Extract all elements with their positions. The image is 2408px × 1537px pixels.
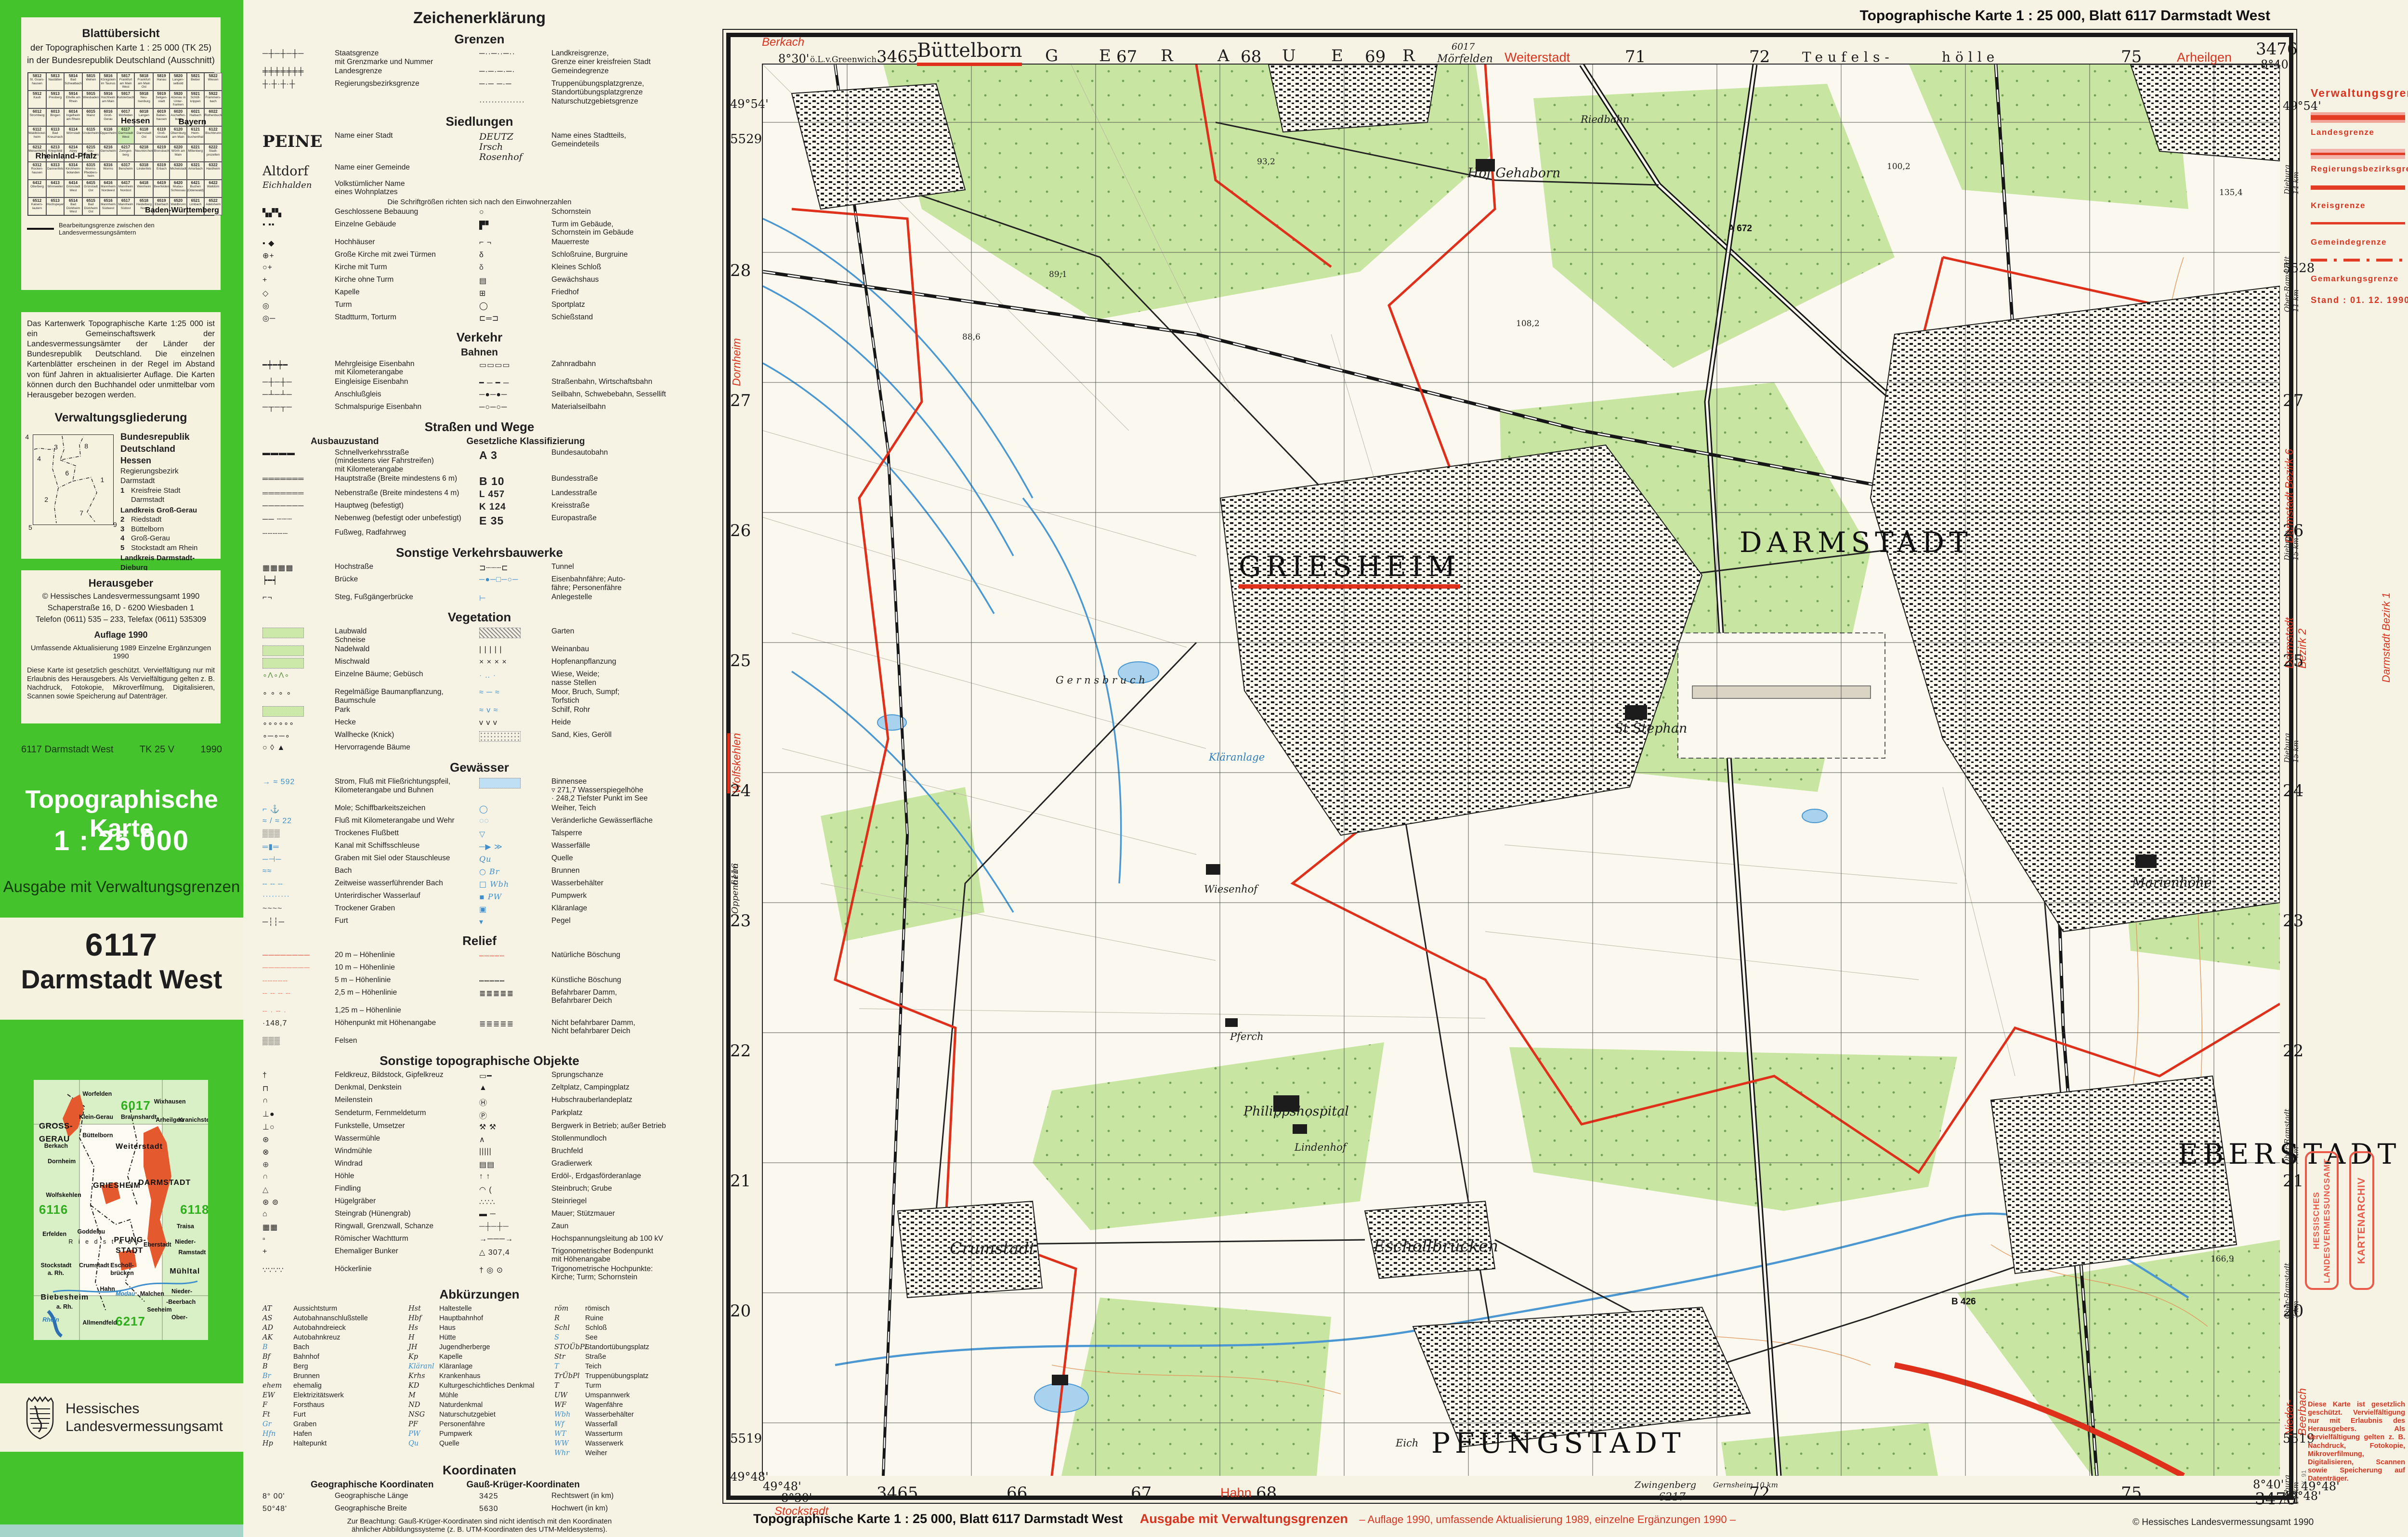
margin-label: 66 (1007, 1484, 1027, 1503)
legend-column-headers: AusbauzustandGesetzliche Klassifizierung (262, 436, 696, 447)
abbreviation-row: QuQuelle (408, 1439, 550, 1448)
stand-date: Stand : 01. 12. 1990 (2311, 295, 2405, 305)
legend-row: ⌐ ⚓Mole; Schiffbarkeitszeichen◯Weiher, T… (262, 803, 696, 816)
sheet-index-cell: 6121Heim-buchenthal (187, 126, 204, 144)
verwaltung-title: Verwaltungsgliederung (27, 411, 215, 425)
legend-row: ─⊣─Graben mit Siel oder StauschleuseQuQu… (262, 854, 696, 866)
legend-row: Mischwald× × × ×Hopfenanpflanzung (262, 657, 696, 670)
abbreviation-row: KDKulturgeschichtliches Denkmal (408, 1381, 550, 1391)
map-place-label: Lindenhof (1295, 1142, 1347, 1153)
margin-label: 49°54' (730, 97, 769, 111)
margin-label: 72 (1749, 47, 1770, 66)
minimap-number: 6 (65, 469, 69, 477)
update-line: Umfassende Aktualisierung 1989 Einzelne … (27, 644, 215, 660)
cover-panel: Blattübersicht der Topographischen Karte… (0, 0, 243, 1537)
sheet-index-cell: 6116Oppenheim (100, 126, 117, 144)
sheet-index-cell: 6318Lindenfels (134, 162, 153, 180)
locator-label: PFUNG- (114, 1236, 146, 1245)
legend-row: †Feldkreuz, Bildstock, Gipfelkreuz▭━Spru… (262, 1070, 696, 1083)
sheet-index-cell: 5912Kaub (28, 91, 46, 108)
sheet-index-cell: 5822Wiesen (204, 73, 222, 91)
sheet-index-cell: 6221Miltenberg (187, 144, 204, 162)
sheet-index-cell: 6416Mannheim Nordwest (100, 180, 117, 197)
sheet-index-cell: 6514Bad Dürkheim West (64, 197, 82, 215)
admin-group: Landkreis Darmstadt-Dieburg (120, 553, 215, 572)
sheet-index-cell: 6516Mannheim Südwest (100, 197, 117, 215)
locator-label: 6217 (116, 1314, 145, 1329)
legend-row: ╌ · ╌ ·1,25 m – Höhenlinie (262, 1006, 696, 1018)
margin-label: 8°30' (781, 1491, 812, 1505)
sheet-index-cell: 6014Ingelheim am Rhein (64, 108, 82, 126)
print-mark: X. 91 (2300, 1470, 2307, 1484)
locator-label: Wixhausen (154, 1098, 186, 1105)
locator-label: DARMSTADT (138, 1179, 191, 1187)
blattuebersicht-card: Blattübersicht der Topographischen Karte… (21, 17, 221, 290)
legend-row: +Kirche ohne Turm▤Gewächshaus (262, 275, 696, 288)
legend-row: ⊛Wassermühle∧Stollenmundloch (262, 1134, 696, 1146)
sheet-index-cell: 6317Bensheim (117, 162, 135, 180)
sheet-index-cell: 6419Beerfelden (153, 180, 170, 197)
locator-label: a. Rh. (48, 1270, 64, 1276)
admin-item: 3Büttelborn (120, 525, 215, 534)
legend-row: ╌ ╌ ╌ ╌2,5 m – Höhenlinie≣≣≣≣≣Befahrbare… (262, 988, 696, 1006)
legend-section-heading: Sonstige topographische Objekte (262, 1053, 696, 1068)
legend-row: ≈ / ≈ 22Fluß mit Kilometerangabe und Weh… (262, 816, 696, 828)
abbreviation-row: TTurm (554, 1381, 696, 1391)
margin-label: 71 (1625, 47, 1646, 66)
abbreviation-row: MMühle (408, 1391, 550, 1400)
sheet-index-cell: 6216Gernsheim (100, 144, 117, 162)
kartenwerk-text: Das Kartenwerk Topographische Karte 1:25… (27, 319, 215, 400)
margin-label: 25 (2283, 651, 2303, 670)
admin-item: 5Stockstadt am Rhein (120, 543, 215, 553)
margin-label: G (1045, 46, 1059, 66)
margin-label: 5528 (2283, 261, 2315, 276)
legend-row: ⊥○Funkstelle, Umsetzer⚒ ⚒Bergwerk in Bet… (262, 1121, 696, 1134)
margin-label: Zwingenberg (1635, 1480, 1696, 1490)
abbreviation-row: KrhsKrankenhaus (408, 1371, 550, 1381)
margin-label: 20 (2283, 1301, 2303, 1321)
margin-label: Weiterstadt (1505, 50, 1570, 65)
hessen-coat-of-arms (25, 1395, 55, 1440)
sheet-index-cell: 6218Neunkirchen (134, 144, 153, 162)
bezirk-label: Darmstadt Bezirk 1 (2380, 592, 2393, 683)
map-place-label: G e r n s b r u c h (1056, 674, 1145, 686)
herausgeber-card: Herausgeber © Hessisches Landesvermessun… (21, 570, 221, 723)
locator-label: Wolfskehlen (46, 1192, 81, 1198)
legend-row: ─┆┆─Furt▾Pegel (262, 916, 696, 929)
legend-example-row: PEINEName einer StadtDEUTZ Irsch Rosenho… (262, 131, 696, 163)
sheet-index-cell: 6312Rocken-hausen (28, 162, 46, 180)
margin-label: 21 (2283, 1171, 2303, 1191)
legend-row: ∘Λ∘Λ∘Einzelne Bäume; Gebüsch· ‥ ·Wiese, … (262, 670, 696, 687)
legend-row: ────────10 m – Höhenlinie (262, 963, 696, 975)
margin-label: 49°48' (2283, 1489, 2321, 1503)
sheet-index-cell: 6412Otterberg (28, 180, 46, 197)
abbreviation-row: KpKapelle (408, 1352, 550, 1362)
legend-section-heading: Gewässer (262, 760, 696, 775)
margin-label: Ober-Ramstadt 7 km (2283, 1109, 2300, 1165)
locator-label: Braunshardt (121, 1114, 157, 1120)
meta-sheet: 6117 Darmstadt West (21, 744, 114, 755)
sheet-index-cell: 6422Walldürn (204, 180, 222, 197)
sheet-index-cell: 6219Brensbach (153, 144, 170, 162)
sheet-index-cell: 5913Presberg (46, 91, 64, 108)
locator-label: -Beerbach (166, 1299, 196, 1305)
minimap-number: 4 (25, 433, 29, 441)
margin-label: Nieder- Beerbach (2283, 1388, 2309, 1435)
sheet-number: 6117 (0, 926, 243, 963)
admin-legend-title: Verwaltungsgrenzen (2311, 87, 2405, 100)
legend-row: ···············Naturschutzgebietsgrenze (262, 97, 696, 109)
legend-row: ⊕Windrad▤▤Gradierwerk (262, 1159, 696, 1171)
legend-row: ─┬─┬─Schmalspurige Eisenbahn─○─○─Materia… (262, 402, 696, 415)
footer-edition: Ausgabe mit Verwaltungsgrenzen (1140, 1511, 1348, 1526)
sheet-index-cell: 6122Bischbrunn (204, 126, 222, 144)
legend-section-heading: Sonstige Verkehrsbauwerke (262, 545, 696, 560)
sheet-index-cell: 6013Bingen (46, 108, 64, 126)
kartenwerk-card: Das Kartenwerk Topographische Karte 1:25… (21, 312, 221, 559)
legend-row: ▚▞▚Geschlossene Bebauung○Schornstein (262, 207, 696, 220)
map-place-label: Wiesenhof (1204, 883, 1257, 895)
sheet-index-cell: 6414Grünstadt West (64, 180, 82, 197)
abbreviation-row: HbfHauptbahnhof (408, 1314, 550, 1323)
legend-row: ⊛ ⊚Hügelgräber∴∵∴Steinriegel (262, 1196, 696, 1209)
legend-row: ◎Turm◯Sportplatz (262, 300, 696, 313)
legend-row: ─┼─┼─Eingleisige Eisenbahn━ ─ ━ ─Straßen… (262, 377, 696, 390)
abbreviation-row: WFWagenfähre (554, 1400, 696, 1410)
abbreviation-row: BBach (262, 1342, 405, 1352)
legend-row: ╌ ╌ ╌Zeitweise wasserführender Bach□ Wbh… (262, 879, 696, 891)
minimap-number: 1 (100, 476, 104, 484)
sheet-footer: Topographische Karte 1 : 25 000, Blatt 6… (753, 1511, 1736, 1526)
abbreviation-row: RRuine (554, 1314, 696, 1323)
legend-row: ─┴─┴─Anschlußgleis─●─●─Seilbahn, Schwebe… (262, 390, 696, 402)
sheet-index-cell: 6420Mudau-Schlossau (170, 180, 186, 197)
margin-label: 6017 (1452, 41, 1475, 52)
map-frame: GRIESHEIMDARMSTADTEBERSTADTPFUNGSTADTSt … (722, 29, 2297, 1504)
legend-section-heading: Koordinaten (262, 1463, 696, 1478)
legend-row: ∘─∘─∘Wallhecke (Knick)Sand, Kies, Geröll (262, 730, 696, 743)
margin-label: 22 (2283, 1041, 2303, 1061)
legend-row: 8° 00'Geographische Länge3425Rechtswert … (262, 1491, 696, 1504)
sheet-index-cell: 6113Bad Kreuznach (46, 126, 64, 144)
region-label: Baden-Württemberg (145, 206, 219, 215)
legend-row: ∵∵∵∵Höckerlinie† ◎ ⊙Trigonometrische Hoc… (262, 1264, 696, 1282)
locator-label: a. Rh. (56, 1303, 73, 1310)
sheet-index-cell: 5813Nastätten (46, 73, 64, 91)
publisher-line1: © Hessisches Landesvermessungsamt 1990 (27, 592, 215, 601)
locator-label: Modau (116, 1290, 135, 1297)
margin-label: 8°40' (2261, 58, 2291, 71)
legend-row: ·148,7Höhenpunkt mit Höhenangabe≣≣≣≣≣Nic… (262, 1018, 696, 1036)
map-place-label: 88,6 (962, 332, 981, 342)
sheet-index-cell: 5815Wehen (82, 73, 100, 91)
map-place-label: A 672 (1728, 223, 1752, 234)
legend-row: ───────Hauptweg (befestigt)K 124Kreisstr… (262, 501, 696, 513)
margin-label: Teufels- (1802, 49, 1894, 65)
map-place-label: Marienhöhe (2132, 875, 2212, 890)
locator-label: Ober- (171, 1314, 187, 1321)
margin-label: 6217 (1659, 1491, 1686, 1503)
margin-label: E (1331, 46, 1344, 66)
locator-label: Nieder- (171, 1288, 192, 1295)
sheet-index-cell: 6222Stadt-prozelten (204, 144, 222, 162)
abbreviation-row: StrStraße (554, 1352, 696, 1362)
admin-state: Hessen (120, 455, 215, 466)
abbreviation-row: HHütte (408, 1333, 550, 1342)
locator-label: Hahn (100, 1286, 115, 1292)
map-place-label: Eschollbrücken (1374, 1236, 1498, 1255)
sheet-header: Topographische Karte 1 : 25 000, Blatt 6… (1859, 8, 2270, 24)
abbreviation-row: PFPersonenfähre (408, 1419, 550, 1429)
legend-row: ▪ ▪▪Einzelne Gebäude▛▘Turm im Gebäude, S… (262, 220, 696, 237)
margin-label: hölle (1942, 49, 1999, 65)
locator-map: GROSS-GERAUWorfelden6017WixhausenKlein-G… (34, 1080, 208, 1340)
locator-label: Klein-Gerau (79, 1114, 113, 1120)
map-place-label: Philippshospital (1243, 1104, 1349, 1119)
sheet-index-cell: 6117Darmstadt West (117, 126, 135, 144)
abbreviation-row: GrGraben (262, 1419, 405, 1429)
legend-row: ⌐¬Steg, Fußgängerbrücke⊢Anlegestelle (262, 592, 696, 605)
sheet-index-cell: 6417Mannheim Nordost (117, 180, 135, 197)
legal-text: Diese Karte ist gesetzlich geschützt. Ve… (27, 666, 215, 701)
minimap-number: 2 (44, 496, 48, 503)
abbreviation-row: KläranlKläranlage (408, 1362, 550, 1371)
legend-row: ┄┄┄┄┄Fußweg, Radfahrweg (262, 528, 696, 540)
margin-label: 75 (2121, 47, 2142, 66)
sheet-index-cell: 5919Seligen-stadt (153, 91, 170, 108)
abbreviation-row: HpHaltepunkt (262, 1439, 405, 1448)
locator-label: Büttelborn (82, 1132, 113, 1139)
locator-label: 6017 (121, 1098, 151, 1113)
locator-label: Ramstadt (178, 1249, 206, 1256)
margin-label: R (1402, 46, 1416, 66)
sheet-index-cell: 6313Dannenfels (46, 162, 64, 180)
sheet-index-cell: 6320Michelstadt (170, 162, 186, 180)
boundary-line-sample (27, 228, 54, 230)
abbreviation-row: SchlSchloß (554, 1323, 696, 1333)
legend-row: △Findling◠ (Steinbruch; Grube (262, 1184, 696, 1196)
blattuebersicht-subtitle1: der Topographischen Karte 1 : 25 000 (TK… (27, 42, 215, 53)
sheet-index-cell: 6321Amorbach (187, 162, 204, 180)
minimap-number: 3 (54, 443, 58, 451)
district-minimap: 4384612759 (33, 434, 114, 525)
minimap-number: 4 (37, 455, 41, 462)
margin-label: E (1099, 46, 1112, 66)
region-label: Bayern (179, 117, 207, 127)
sheet-index-cell: 5818Frankfurt am Main Ost (134, 73, 153, 91)
margin-label: 26 (2283, 521, 2303, 540)
locator-label: Escholl- (110, 1262, 134, 1269)
locator-label: Eberstadt (144, 1241, 171, 1248)
map-place-label: Hof Gehaborn (1467, 166, 1560, 181)
map-place-label: B 426 (1951, 1297, 1976, 1307)
sheet-index-cell: 5816Königstein im Taunus (100, 73, 117, 91)
sheet-index-cell: 6415Grünstadt Ost (82, 180, 100, 197)
sheet-index-cell: 5820Langen-selbold (170, 73, 186, 91)
sheet-index-cell: 5819Hanau (153, 73, 170, 91)
legend-section-heading: Abkürzungen (262, 1287, 696, 1302)
locator-label: Stockstadt (40, 1262, 71, 1269)
legend-row: ▫Römischer Wachtturm→───→Hochspannungsle… (262, 1234, 696, 1247)
legend-body: Grenzen─┼─┼─┼─Staatsgrenze mit Grenzmark… (262, 32, 696, 1537)
publisher-band: Hessisches Landesvermessungsamt (0, 1383, 243, 1452)
abbreviation-row: EWElektrizitätswerk (262, 1391, 405, 1400)
legend-row: ── ┄┄┄Nebenweg (befestigt oder unbefesti… (262, 513, 696, 528)
abbreviation-row: WfWasserfall (554, 1419, 696, 1429)
legend-row: ▪ ◆Hochhäuser⌐ ¬Mauerreste (262, 237, 696, 250)
legend-column-headers: Geographische KoordinatenGauß-Krüger-Koo… (262, 1480, 696, 1490)
abbreviation-row: PWPumpwerk (408, 1429, 550, 1439)
locator-label: Mühltal (170, 1267, 200, 1276)
boundary-legend-item: Gemeindegrenze (2311, 222, 2405, 247)
locator-label: Crumstadt (79, 1262, 109, 1269)
abbreviation-row: WTWasserturm (554, 1429, 696, 1439)
sheet-index-cell: 6322Hardheim (204, 162, 222, 180)
minimap-number: 9 (113, 521, 117, 528)
minimap-number: 5 (28, 524, 32, 531)
footer-title: Topographische Karte 1 : 25 000, Blatt 6… (753, 1511, 1123, 1526)
legend-row: ═══════Nebenstraße (Breite mindestens 4 … (262, 488, 696, 501)
locator-label: Seeheim (147, 1306, 171, 1313)
sheet-index-cell: 5920Alzenau in Unter-franken (170, 91, 186, 108)
abbreviation-row: HfnHafen (262, 1429, 405, 1439)
cover-scale: 1 : 25 000 (0, 825, 243, 857)
legend-row: +Ehemaliger Bunker△ 307,4Trigonometrisch… (262, 1247, 696, 1264)
blattuebersicht-title: Blattübersicht (27, 27, 215, 40)
margin-label: 26 (730, 521, 751, 540)
map-place-label: PFUNGSTADT (1431, 1427, 1686, 1459)
legend-row: ╌╌╌╌╌5 m – Höhenlinie┉┉┉┉┉Künstliche Bös… (262, 975, 696, 988)
admin-district: Regierungsbezirk Darmstadt (120, 467, 215, 486)
margin-label: A (1217, 46, 1230, 66)
locator-label: Erfelden (42, 1231, 66, 1237)
abbreviation-row: TTeich (554, 1362, 696, 1371)
locator-label: Dornheim (48, 1158, 76, 1165)
legend-panel: Zeichenerklärung Grenzen─┼─┼─┼─Staatsgre… (243, 0, 713, 1537)
sheet-index-cell: 6314Kirchheim-bolanden (64, 162, 82, 180)
margin-label: 21 (730, 1171, 751, 1191)
meta-series: TK 25 V (140, 744, 174, 755)
abbreviation-row: UWUmspannwerk (554, 1391, 696, 1400)
legend-row: ○+Kirche mit TurmδKleines Schloß (262, 263, 696, 275)
sheet-number-band: 6117 Darmstadt West (0, 918, 243, 1020)
locator-label: STADT (116, 1247, 143, 1255)
blatt-caption: Bearbeitungsgrenze zwischen den Landesve… (27, 222, 215, 236)
sheet-index-cell: 5814Bad Schwalbach (64, 73, 82, 91)
boundary-legend-item: Kreisgrenze (2311, 185, 2405, 210)
map-place-label: 89,1 (1049, 270, 1067, 279)
sheet-index-cell: 5812St. Goars-hausen (28, 73, 46, 91)
map-place-label: 135,4 (2219, 188, 2243, 197)
locator-label: Malchen (140, 1290, 164, 1297)
admin-country: Bundesrepublik Deutschland (120, 432, 215, 455)
legend-row: ⊓Denkmal, Denkstein▲Zeltplatz, Campingpl… (262, 1083, 696, 1095)
margin-label: 20 (730, 1301, 751, 1321)
map-place-label: Crumstadt (950, 1239, 1035, 1258)
locator-label: Biebesheim (40, 1293, 89, 1302)
boundary-legend-item: Gemarkungsgrenze (2311, 259, 2405, 284)
map-canvas (762, 64, 2279, 1475)
abbreviation-row: AKAutobahnkreuz (262, 1333, 405, 1342)
map-sheet: Topographische Karte 1 : 25 000, Blatt 6… (713, 0, 2408, 1537)
map-place-label: Eich (1396, 1437, 1418, 1449)
abbreviation-row: TrÜbPlTruppenübungsplatz (554, 1371, 696, 1381)
margin-label: 5519 (730, 1432, 762, 1446)
map-place-label: Kläranlage (1209, 751, 1265, 763)
margin-label: Dieburg 14 km (2283, 165, 2300, 195)
archive-stamp-kartenarchiv: KARTENARCHIV (2349, 1151, 2374, 1290)
legend-example-row: AltdorfName einer Gemeinde (262, 163, 696, 179)
sheet-index-cell: 5817Frankfurt am Main West (117, 73, 135, 91)
legend-row: ∘ ∘ ∘ ∘Regelmäßige Baumanpflanzung, Baum… (262, 687, 696, 705)
legend-row: ∩Höhle↑ ↑Erdöl-, Erdgasförderanlage (262, 1171, 696, 1184)
abbreviation-row: FForsthaus (262, 1400, 405, 1410)
margin-label: Büttelborn (917, 39, 1022, 66)
margin-label: 27 (730, 391, 751, 410)
abbreviation-row: FtFurt (262, 1410, 405, 1419)
sheet-index-cell: 5916Hochheim am Main (100, 91, 117, 108)
archive-stamp-hlva: HESSISCHES LANDESVERMESSUNGSAMT (2305, 1151, 2339, 1290)
margin-label: Mörfelden (1437, 53, 1493, 65)
legend-title: Zeichenerklärung (262, 9, 696, 27)
map-place-label: 108,2 (1516, 319, 1540, 328)
map-place-label: 93,2 (1257, 157, 1275, 167)
abbreviation-row: HstHaltestelle (408, 1304, 550, 1314)
sheet-index-cell: 6120Obernburg am Main (170, 126, 186, 144)
meta-row: 6117 Darmstadt West TK 25 V 1990 (21, 744, 222, 755)
legend-row: ▒▒▒Trockenes Flußbett▽Talsperre (262, 828, 696, 841)
admin-item: 4Groß-Gerau (120, 534, 215, 543)
legend-row: ·········Unterirdischer Wasserlauf▪ PWPu… (262, 891, 696, 904)
legend-row: Laubwald SchneiseGarten (262, 627, 696, 644)
legend-section-heading: Relief (262, 933, 696, 948)
sheet-index-cell: 6315Worms-Pfedders-heim (82, 162, 100, 180)
sheet-index-cell: 5821Bieber (187, 73, 204, 91)
herausgeber-title: Herausgeber (27, 577, 215, 590)
margin-label: 23 (2283, 911, 2303, 931)
publisher-line2: Schaperstraße 16, D - 6200 Wiesbaden 1 (27, 604, 215, 613)
locator-label: Traisa (177, 1223, 194, 1230)
legend-row: ~~~~Trockener Graben▣Kläranlage (262, 904, 696, 916)
minimap-number: 7 (79, 509, 83, 517)
margin-label: 23 (730, 911, 751, 931)
locator-label: 6118 (180, 1202, 208, 1217)
margin-label: U (1282, 46, 1297, 66)
admin-item: 1Kreisfreie Stadt Darmstadt (120, 486, 215, 505)
locator-label: Kranichstein (178, 1117, 208, 1123)
margin-label: 22 (730, 1041, 751, 1061)
sheet-index-cell: 5921Schöll-krippen (187, 91, 204, 108)
abbreviation-row: BrBrunnen (262, 1371, 405, 1381)
map-place-label: DARMSTADT (1740, 526, 1973, 559)
locator-label: Worfelden (82, 1090, 112, 1097)
margin-label: Berkach (762, 36, 804, 49)
sheet-index-cell: 6319Erbach (153, 162, 170, 180)
legend-row: ⊗Windmühle|||||Bruchfeld (262, 1146, 696, 1159)
margin-label: R (1161, 46, 1174, 66)
legend-section-heading: Straßen und Wege (262, 420, 696, 434)
legend-section-heading: Grenzen (262, 32, 696, 47)
admin-item: 2Riedstadt (120, 515, 215, 525)
map-place-label: Pferch (1230, 1031, 1264, 1042)
publisher-name: Hessisches Landesvermessungsamt (65, 1400, 223, 1436)
sheet-index-cell: 6114Wörrstadt (64, 126, 82, 144)
locator-label: Rhein (42, 1316, 59, 1323)
locator-label: Nieder- (175, 1238, 196, 1245)
margin-label: 68 (1241, 47, 1261, 66)
